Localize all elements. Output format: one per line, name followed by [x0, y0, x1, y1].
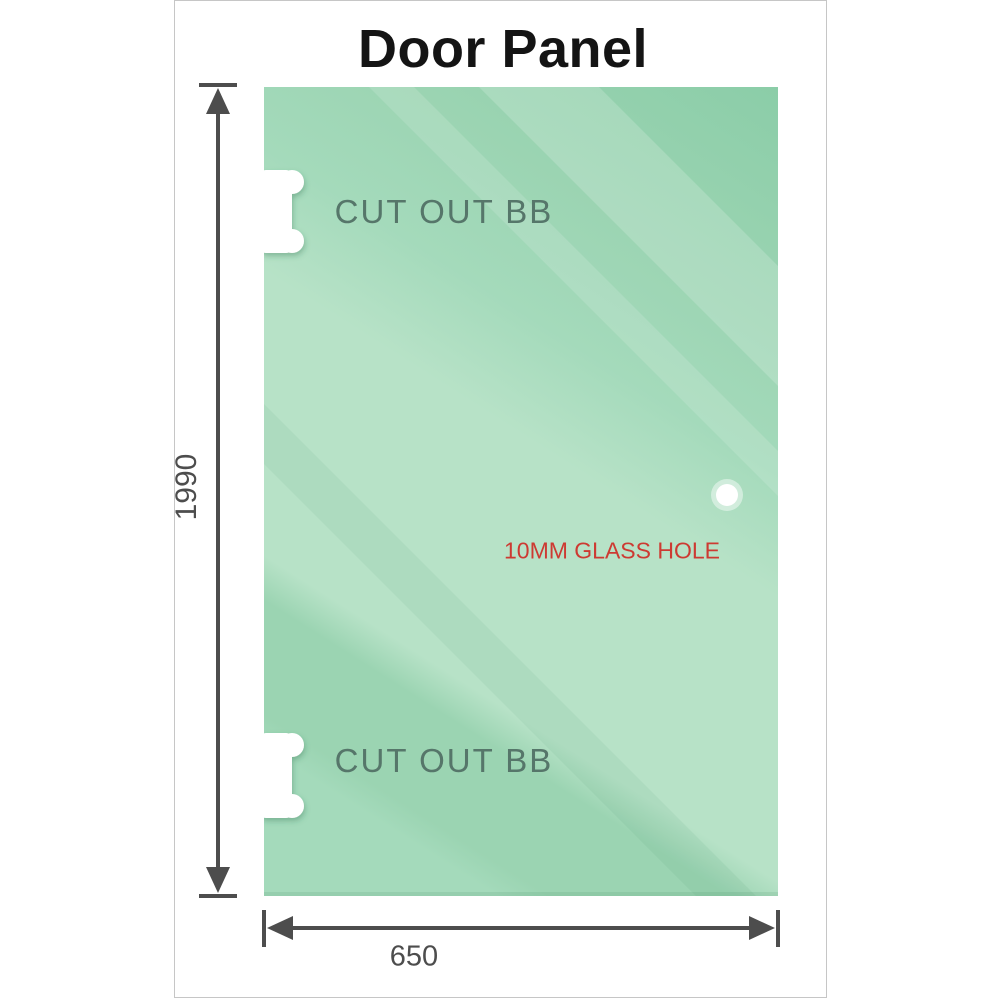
cutout-bottom-label: CUT OUT BB	[335, 742, 554, 780]
page-title: Door Panel	[358, 18, 648, 80]
glass-hole	[711, 479, 743, 511]
glass-hole-label: 10MM GLASS HOLE	[504, 538, 720, 565]
cutout-top-label: CUT OUT BB	[335, 193, 554, 231]
width-dimension-label: 650	[390, 941, 438, 974]
height-dimension-label: 1990	[170, 454, 204, 521]
diagram-canvas: Door Panel	[0, 0, 1000, 1000]
